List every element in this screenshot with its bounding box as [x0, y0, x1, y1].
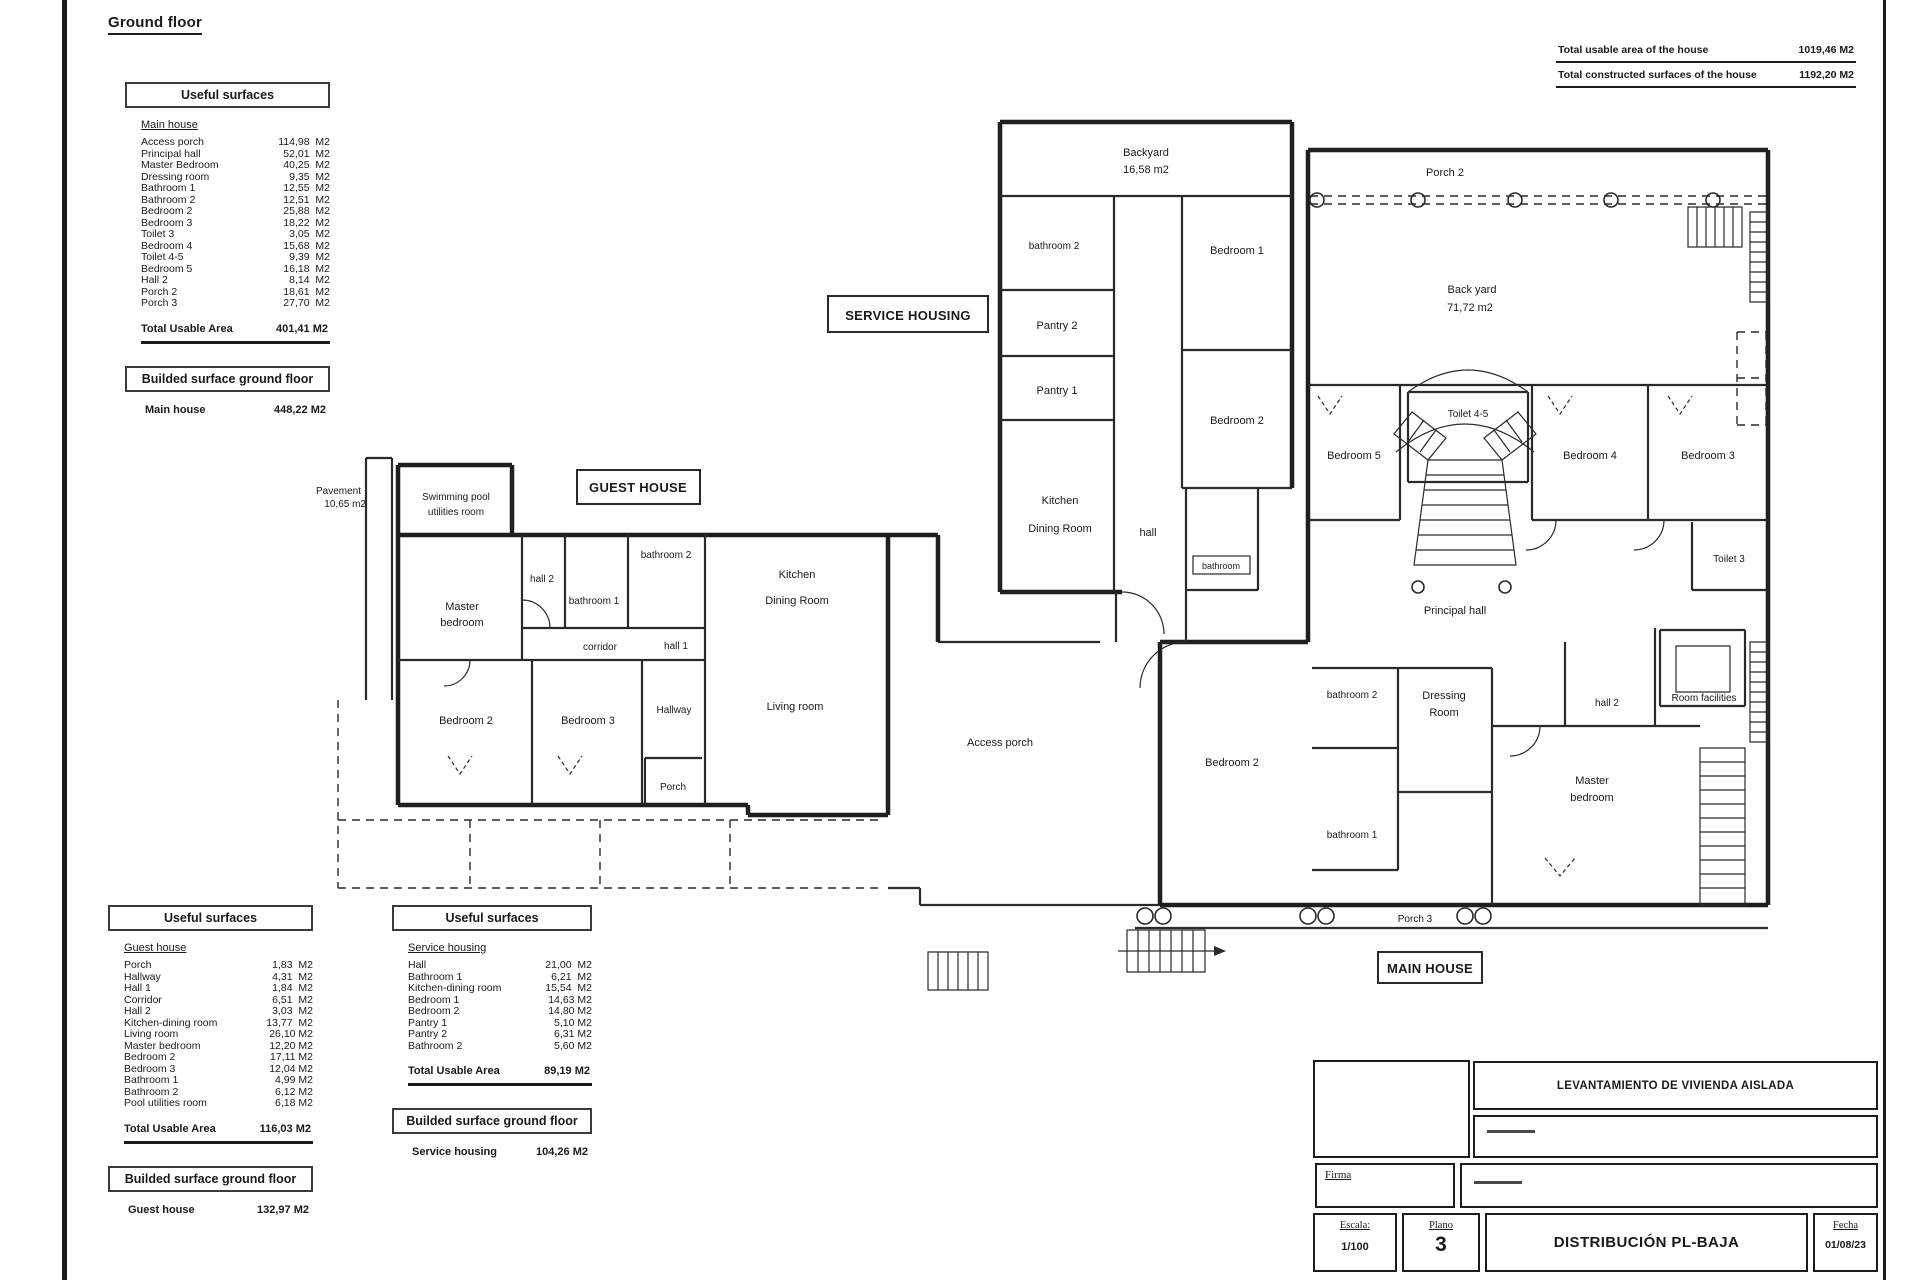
porch2-column — [1310, 193, 1324, 207]
room-label: hall 1 — [664, 641, 688, 652]
useful-surfaces-header: Useful surfaces — [125, 82, 330, 108]
room-label: Master — [445, 601, 479, 613]
built-label: Service housing — [412, 1146, 497, 1158]
row-value: 17,11 M2 — [270, 1052, 313, 1064]
sheet-left-border — [62, 0, 67, 1280]
room-label: Dining Room — [1028, 523, 1092, 535]
table-row: Bathroom 14,99 M2 — [124, 1075, 313, 1087]
room-label: bathroom — [1202, 561, 1240, 571]
total-constructed-label: Total constructed surfaces of the house — [1558, 69, 1757, 81]
room-label: 10,65 m2 — [324, 499, 366, 510]
room-label: Toilet 3 — [1713, 554, 1745, 565]
titleblock-logo-box — [1313, 1060, 1470, 1158]
room-label: 16,58 m2 — [1123, 164, 1169, 176]
row-label: Bedroom 2 — [408, 1006, 459, 1018]
row-label: Bathroom 1 — [124, 1075, 178, 1087]
table-row: Pantry 26,31 M2 — [408, 1029, 592, 1041]
built-surface-header: Builded surface ground floor — [108, 1166, 313, 1192]
total-usable-row: Total usable area of the house 1019,46 M… — [1556, 38, 1856, 63]
table-rows: Hall21,00 M2Bathroom 16,21 M2Kitchen-din… — [408, 960, 592, 1052]
room-label: Pantry 1 — [1037, 385, 1078, 397]
room-facilities-shaft — [1676, 646, 1730, 692]
access-porch-steps — [928, 952, 988, 990]
room-label: Principal hall — [1424, 605, 1486, 617]
row-value: 14,80 M2 — [548, 1006, 592, 1018]
table-row: Hall21,00 M2 — [408, 960, 592, 972]
hall-column — [1412, 581, 1424, 593]
table-group-main-house: Main house — [141, 119, 330, 131]
room-label: Living room — [767, 701, 824, 713]
row-value: 40,25 M2 — [283, 160, 330, 172]
project-title: LEVANTAMIENTO DE VIVIENDA AISLADA — [1557, 1080, 1794, 1092]
room-label: Hallway — [656, 705, 691, 716]
porch2-column — [1411, 193, 1425, 207]
table-row: Hall 11,84 M2 — [124, 983, 313, 995]
table-row: Living room26,10 M2 — [124, 1029, 313, 1041]
row-label: Hall 1 — [124, 983, 151, 995]
total-label: Total Usable Area — [124, 1123, 216, 1135]
row-label: Bathroom 1 — [141, 183, 195, 195]
useful-surfaces-header: Useful surfaces — [108, 905, 313, 931]
exterior-stairs-bottom-left — [1118, 930, 1214, 972]
room-label: Bedroom 3 — [561, 715, 615, 727]
row-label: Porch 3 — [141, 298, 177, 310]
grand-staircase — [1394, 412, 1536, 565]
placeholder-dash — [1474, 1181, 1522, 1184]
dashed-porch-lines — [338, 196, 1768, 888]
stair-arrow-head — [1214, 946, 1226, 956]
table-row: Bedroom 225,88 M2 — [141, 206, 330, 218]
porch3-column — [1457, 908, 1473, 924]
table-row: Bedroom 217,11 M2 — [124, 1052, 313, 1064]
row-value: 114,98 M2 — [278, 137, 330, 149]
main-house-label: MAIN HOUSE — [1387, 961, 1473, 976]
room-label: utilities room — [428, 507, 484, 518]
table-group-service-housing: Service housing — [408, 942, 592, 954]
row-value: 21,00 M2 — [545, 960, 592, 972]
table-row: Pool utilities room6,18 M2 — [124, 1098, 313, 1110]
titleblock-fecha-box: Fecha 01/08/23 — [1813, 1213, 1878, 1272]
total-usable-area-row: Total Usable Area 401,41 M2 — [141, 323, 330, 344]
built-value: 132,97 M2 — [257, 1204, 309, 1216]
room-label: Swimming pool — [422, 492, 490, 503]
room-label: Toilet 4-5 — [1448, 409, 1489, 420]
room-label: 71,72 m2 — [1447, 302, 1493, 314]
room-label: hall — [1139, 527, 1156, 539]
built-surface-header: Builded surface ground floor — [392, 1108, 592, 1134]
porch3-column — [1318, 908, 1334, 924]
sheet-right-border — [1883, 0, 1886, 1280]
row-value: 1,83 M2 — [272, 960, 313, 972]
walls-outer — [398, 122, 1768, 905]
titleblock-drawing-box: DISTRIBUCIÓN PL-BAJA — [1485, 1213, 1808, 1272]
room-label: Porch — [660, 782, 686, 793]
room-label: bathroom 2 — [1327, 690, 1378, 701]
row-value: 27,70 M2 — [283, 298, 330, 310]
plano-label: Plano — [1404, 1215, 1478, 1231]
room-label: bathroom 1 — [569, 596, 620, 607]
built-surface-row: Service housing 104,26 M2 — [412, 1146, 588, 1158]
table-row: Bathroom 112,55 M2 — [141, 183, 330, 195]
total-usable-value: 1019,46 M2 — [1799, 44, 1854, 56]
main-house-table: Useful surfaces Main house Access porch1… — [125, 82, 330, 416]
room-label: Bedroom 2 — [1205, 757, 1259, 769]
total-value: 116,03 M2 — [260, 1123, 311, 1135]
room-label: Room — [1429, 707, 1458, 719]
room-label: Bedroom 1 — [1210, 245, 1264, 257]
total-usable-area-row: Total Usable Area 89,19 M2 — [408, 1065, 592, 1086]
hall-column — [1499, 581, 1511, 593]
fecha-label: Fecha — [1815, 1215, 1876, 1231]
room-label: Backyard — [1123, 147, 1169, 159]
table-group-guest-house: Guest house — [124, 942, 313, 954]
room-label: Bedroom 2 — [439, 715, 493, 727]
row-label: Access porch — [141, 137, 204, 149]
service-housing-label: SERVICE HOUSING — [845, 308, 971, 323]
row-label: Hall 2 — [124, 1006, 151, 1018]
built-surface-row: Main house 448,22 M2 — [145, 404, 326, 416]
room-label: bedroom — [1570, 792, 1613, 804]
room-label: Access porch — [967, 737, 1033, 749]
room-label: Bedroom 4 — [1563, 450, 1617, 462]
porch3-column — [1155, 908, 1171, 924]
row-label: Hall — [408, 960, 426, 972]
table-row: Bathroom 25,60 M2 — [408, 1041, 592, 1053]
row-label: Kitchen-dining room — [408, 983, 501, 995]
titleblock-plano-box: Plano 3 — [1402, 1213, 1480, 1272]
porch3-column — [1475, 908, 1491, 924]
room-label: Pavement — [316, 486, 361, 497]
table-row: Toilet 33,05 M2 — [141, 229, 330, 241]
room-label: Porch 2 — [1426, 167, 1464, 179]
walls-inner — [366, 196, 1768, 928]
row-value: 9,39 M2 — [289, 252, 330, 264]
firma-label: Firma — [1317, 1165, 1453, 1181]
total-label: Total Usable Area — [408, 1065, 500, 1077]
room-label: Dining Room — [765, 595, 829, 607]
row-label: Toilet 4-5 — [141, 252, 184, 264]
titleblock-ref-box — [1460, 1163, 1878, 1208]
plano-value: 3 — [1404, 1231, 1478, 1257]
row-label: Porch — [124, 960, 151, 972]
porch3-column — [1300, 908, 1316, 924]
stairs-top-right — [1688, 207, 1768, 302]
row-label: Master Bedroom — [141, 160, 219, 172]
drawing-title: DISTRIBUCIÓN PL-BAJA — [1554, 1234, 1740, 1251]
porch3-column — [1137, 908, 1153, 924]
row-value: 26,10 M2 — [269, 1029, 313, 1041]
porch2-column — [1604, 193, 1618, 207]
room-label: Bedroom 5 — [1327, 450, 1381, 462]
room-label: Master — [1575, 775, 1609, 787]
table-row: Porch 327,70 M2 — [141, 298, 330, 310]
row-value: 25,88 M2 — [283, 206, 330, 218]
page-title: Ground floor — [108, 14, 202, 35]
row-label: Bedroom 2 — [124, 1052, 175, 1064]
guest-house-table: Useful surfaces Guest house Porch1,83 M2… — [108, 905, 313, 1216]
titleblock-firma-box: Firma — [1315, 1163, 1455, 1208]
total-constructed-value: 1192,20 M2 — [1799, 69, 1854, 81]
built-surface-header: Builded surface ground floor — [125, 366, 330, 392]
room-label: bathroom 1 — [1327, 830, 1378, 841]
row-label: Bathroom 2 — [408, 1041, 462, 1053]
room-label: Bedroom 3 — [1681, 450, 1735, 462]
table-row: Hall 28,14 M2 — [141, 275, 330, 287]
table-rows: Porch1,83 M2Hallway4,31 M2Hall 11,84 M2C… — [124, 960, 313, 1110]
total-label: Total Usable Area — [141, 323, 233, 335]
placeholder-dash — [1487, 1130, 1535, 1133]
row-value: 1,84 M2 — [272, 983, 313, 995]
house-totals: Total usable area of the house 1019,46 M… — [1556, 38, 1856, 88]
room-label: Bedroom 2 — [1210, 415, 1264, 427]
row-label: Bedroom 2 — [141, 206, 192, 218]
room-label: hall 2 — [530, 574, 554, 585]
total-usable-label: Total usable area of the house — [1558, 44, 1708, 56]
built-label: Main house — [145, 404, 206, 416]
guest-house-label: GUEST HOUSE — [589, 480, 687, 495]
room-label: Porch 3 — [1398, 914, 1433, 925]
row-label: Living room — [124, 1029, 178, 1041]
room-label: Room facilities — [1671, 693, 1736, 704]
table-row: Access porch114,98 M2 — [141, 137, 330, 149]
row-label: Pool utilities room — [124, 1098, 207, 1110]
room-label: Dressing — [1422, 690, 1465, 702]
built-label: Guest house — [128, 1204, 195, 1216]
table-row: Kitchen-dining room15,54 M2 — [408, 983, 592, 995]
row-value: 3,05 M2 — [289, 229, 330, 241]
table-rows: Access porch114,98 M2Principal hall52,01… — [141, 137, 330, 310]
total-value: 401,41 M2 — [276, 323, 328, 335]
row-label: Hall 2 — [141, 275, 168, 287]
room-label: Back yard — [1448, 284, 1497, 296]
table-row: Hall 23,03 M2 — [124, 1006, 313, 1018]
escala-value: 1/100 — [1315, 1231, 1395, 1253]
room-label: Kitchen — [779, 569, 816, 581]
row-value: 3,03 M2 — [272, 1006, 313, 1018]
row-label: Pantry 2 — [408, 1029, 447, 1041]
service-housing-table: Useful surfaces Service housing Hall21,0… — [392, 905, 592, 1158]
useful-surfaces-header: Useful surfaces — [392, 905, 592, 931]
titleblock-escala-box: Escala: 1/100 — [1313, 1213, 1397, 1272]
row-label: Toilet 3 — [141, 229, 174, 241]
row-value: 4,99 M2 — [275, 1075, 313, 1087]
built-value: 104,26 M2 — [536, 1146, 588, 1158]
porch2-column — [1508, 193, 1522, 207]
table-row: Bedroom 214,80 M2 — [408, 1006, 592, 1018]
room-label: Kitchen — [1042, 495, 1079, 507]
table-row: Porch1,83 M2 — [124, 960, 313, 972]
room-label: bedroom — [440, 617, 483, 629]
stairs-right-side — [1700, 642, 1768, 905]
titleblock-project-box: LEVANTAMIENTO DE VIVIENDA AISLADA — [1473, 1061, 1878, 1110]
fecha-value: 01/08/23 — [1815, 1231, 1876, 1251]
escala-label: Escala: — [1315, 1215, 1395, 1231]
built-value: 448,22 M2 — [274, 404, 326, 416]
room-label: bathroom 2 — [641, 550, 692, 561]
titleblock-subtitle-box — [1473, 1115, 1878, 1158]
row-value: 12,55 M2 — [283, 183, 330, 195]
row-value: 6,18 M2 — [275, 1098, 313, 1110]
row-value: 15,54 M2 — [545, 983, 592, 995]
built-surface-row: Guest house 132,97 M2 — [128, 1204, 309, 1216]
table-row: Master Bedroom40,25 M2 — [141, 160, 330, 172]
porch2-column — [1706, 193, 1720, 207]
room-label: Pantry 2 — [1037, 320, 1078, 332]
total-usable-area-row: Total Usable Area 116,03 M2 — [124, 1123, 313, 1144]
row-value: 6,31 M2 — [554, 1029, 592, 1041]
room-label: hall 2 — [1595, 698, 1619, 709]
room-label: corridor — [583, 642, 618, 653]
row-value: 5,60 M2 — [554, 1041, 592, 1053]
table-row: Toilet 4-59,39 M2 — [141, 252, 330, 264]
toilet45-bay — [1408, 370, 1528, 392]
total-value: 89,19 M2 — [544, 1065, 590, 1077]
room-label: bathroom 2 — [1029, 241, 1080, 252]
row-value: 8,14 M2 — [289, 275, 330, 287]
